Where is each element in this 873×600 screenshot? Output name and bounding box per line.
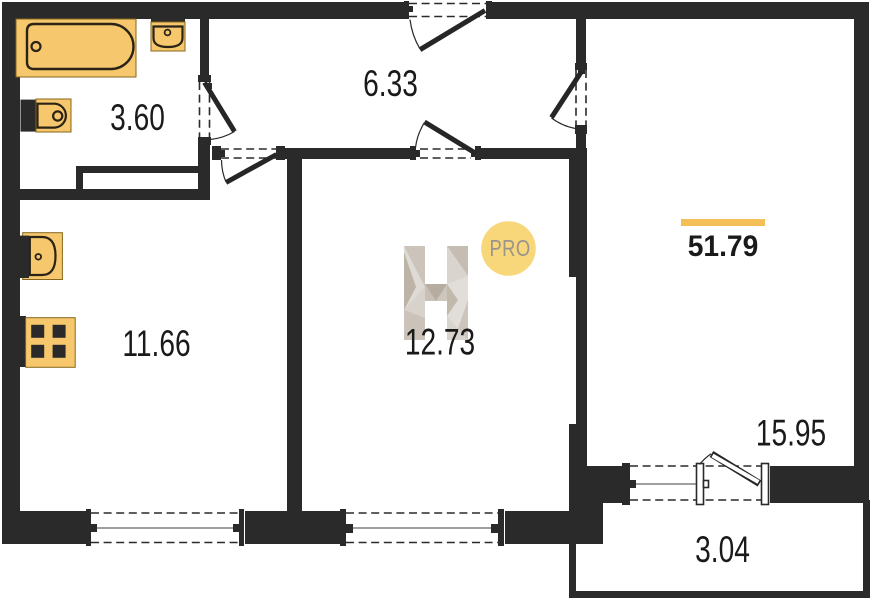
svg-text:PRO: PRO bbox=[489, 236, 530, 261]
svg-text:51.79: 51.79 bbox=[688, 230, 759, 263]
svg-text:15.95: 15.95 bbox=[756, 412, 826, 454]
svg-text:12.73: 12.73 bbox=[405, 321, 475, 363]
svg-text:11.66: 11.66 bbox=[122, 322, 190, 364]
svg-text:3.60: 3.60 bbox=[110, 96, 165, 138]
svg-text:6.33: 6.33 bbox=[363, 62, 418, 104]
svg-text:3.04: 3.04 bbox=[695, 528, 750, 570]
